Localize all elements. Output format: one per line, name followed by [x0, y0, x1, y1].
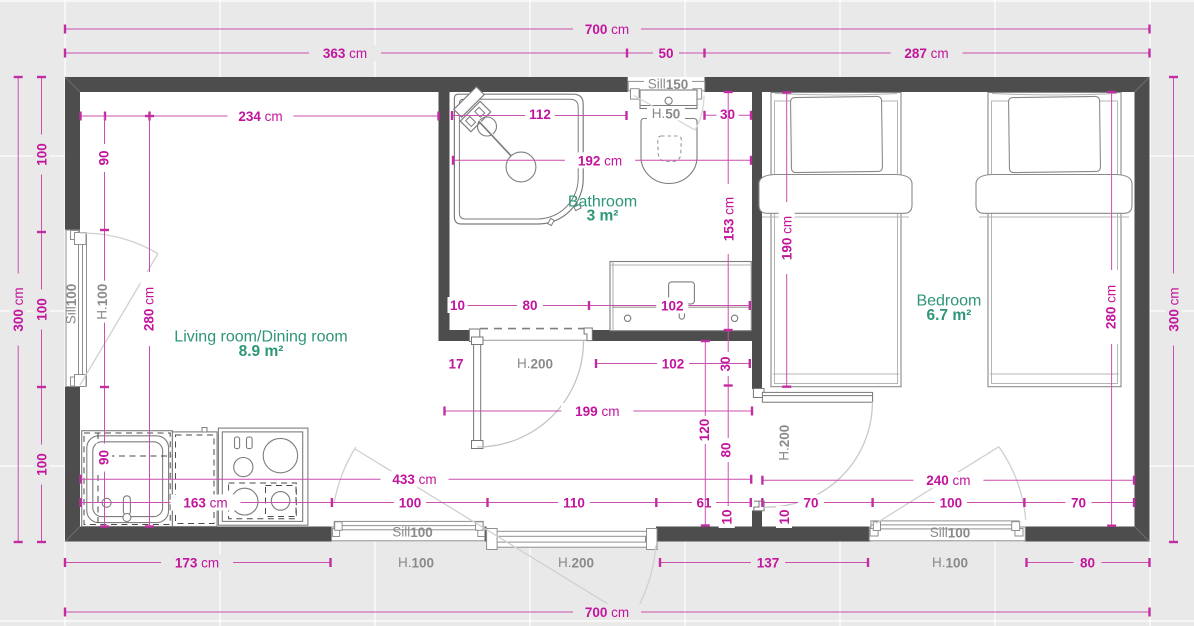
svg-text:10: 10 [719, 509, 734, 524]
svg-text:6.7 m²: 6.7 m² [926, 307, 971, 324]
svg-text:90: 90 [96, 450, 111, 465]
svg-text:H.200: H.200 [777, 425, 792, 461]
svg-text:80: 80 [522, 298, 537, 313]
svg-text:70: 70 [1071, 495, 1086, 510]
svg-text:700 cm: 700 cm [585, 605, 629, 620]
svg-text:Sill150: Sill150 [648, 77, 689, 92]
svg-text:192 cm: 192 cm [578, 153, 622, 168]
svg-text:H.100: H.100 [398, 555, 434, 570]
svg-text:30: 30 [720, 107, 735, 122]
svg-text:H.100: H.100 [95, 284, 110, 320]
svg-text:8.9 m²: 8.9 m² [239, 343, 284, 360]
svg-text:50: 50 [658, 46, 673, 61]
svg-text:10: 10 [450, 298, 465, 313]
svg-text:102: 102 [662, 356, 685, 371]
svg-text:70: 70 [803, 495, 818, 510]
svg-text:173 cm: 173 cm [175, 555, 219, 570]
svg-text:100: 100 [34, 143, 49, 166]
svg-text:100: 100 [399, 495, 422, 510]
svg-text:300 cm: 300 cm [11, 287, 26, 331]
svg-text:H.50: H.50 [652, 106, 681, 121]
svg-text:H.200: H.200 [558, 555, 594, 570]
svg-text:90: 90 [96, 150, 111, 165]
svg-text:Sill100: Sill100 [930, 525, 971, 540]
svg-text:H.200: H.200 [517, 356, 553, 371]
svg-text:110: 110 [563, 495, 585, 510]
svg-text:102: 102 [661, 298, 684, 313]
svg-text:433 cm: 433 cm [392, 472, 436, 487]
svg-text:100: 100 [940, 495, 963, 510]
svg-text:100: 100 [34, 298, 49, 321]
svg-text:80: 80 [718, 442, 733, 457]
svg-text:H.100: H.100 [932, 555, 968, 570]
svg-text:3 m²: 3 m² [587, 208, 619, 225]
svg-text:234 cm: 234 cm [238, 109, 282, 124]
svg-text:112: 112 [529, 107, 551, 122]
svg-text:240 cm: 240 cm [926, 473, 970, 488]
svg-text:300 cm: 300 cm [1166, 287, 1181, 331]
svg-text:61: 61 [696, 495, 712, 510]
svg-text:287 cm: 287 cm [904, 46, 948, 61]
svg-text:80: 80 [1080, 555, 1095, 570]
svg-text:153 cm: 153 cm [721, 197, 736, 241]
svg-text:10: 10 [777, 509, 792, 524]
svg-text:137: 137 [757, 555, 780, 570]
svg-text:163 cm: 163 cm [183, 495, 227, 510]
svg-text:363 cm: 363 cm [323, 46, 367, 61]
svg-text:100: 100 [34, 453, 49, 476]
svg-text:Sill100: Sill100 [63, 284, 78, 325]
svg-text:Sill100: Sill100 [392, 525, 433, 540]
svg-text:17: 17 [448, 356, 463, 371]
svg-text:280 cm: 280 cm [141, 287, 156, 331]
svg-text:280 cm: 280 cm [1103, 285, 1118, 329]
svg-text:199 cm: 199 cm [575, 404, 619, 419]
svg-text:120: 120 [697, 419, 712, 442]
svg-text:190 cm: 190 cm [779, 216, 794, 260]
svg-text:700 cm: 700 cm [585, 22, 629, 37]
